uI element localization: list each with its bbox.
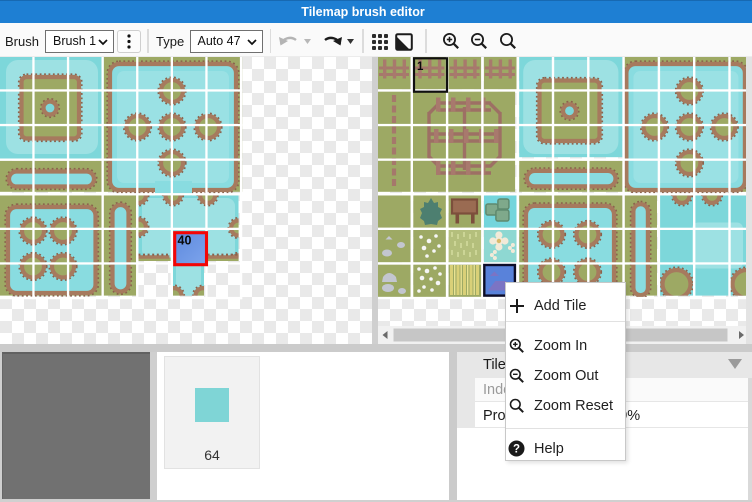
svg-text:?: ?	[513, 444, 520, 456]
svg-text:40: 40	[178, 234, 192, 248]
svg-text:1: 1	[417, 61, 424, 73]
